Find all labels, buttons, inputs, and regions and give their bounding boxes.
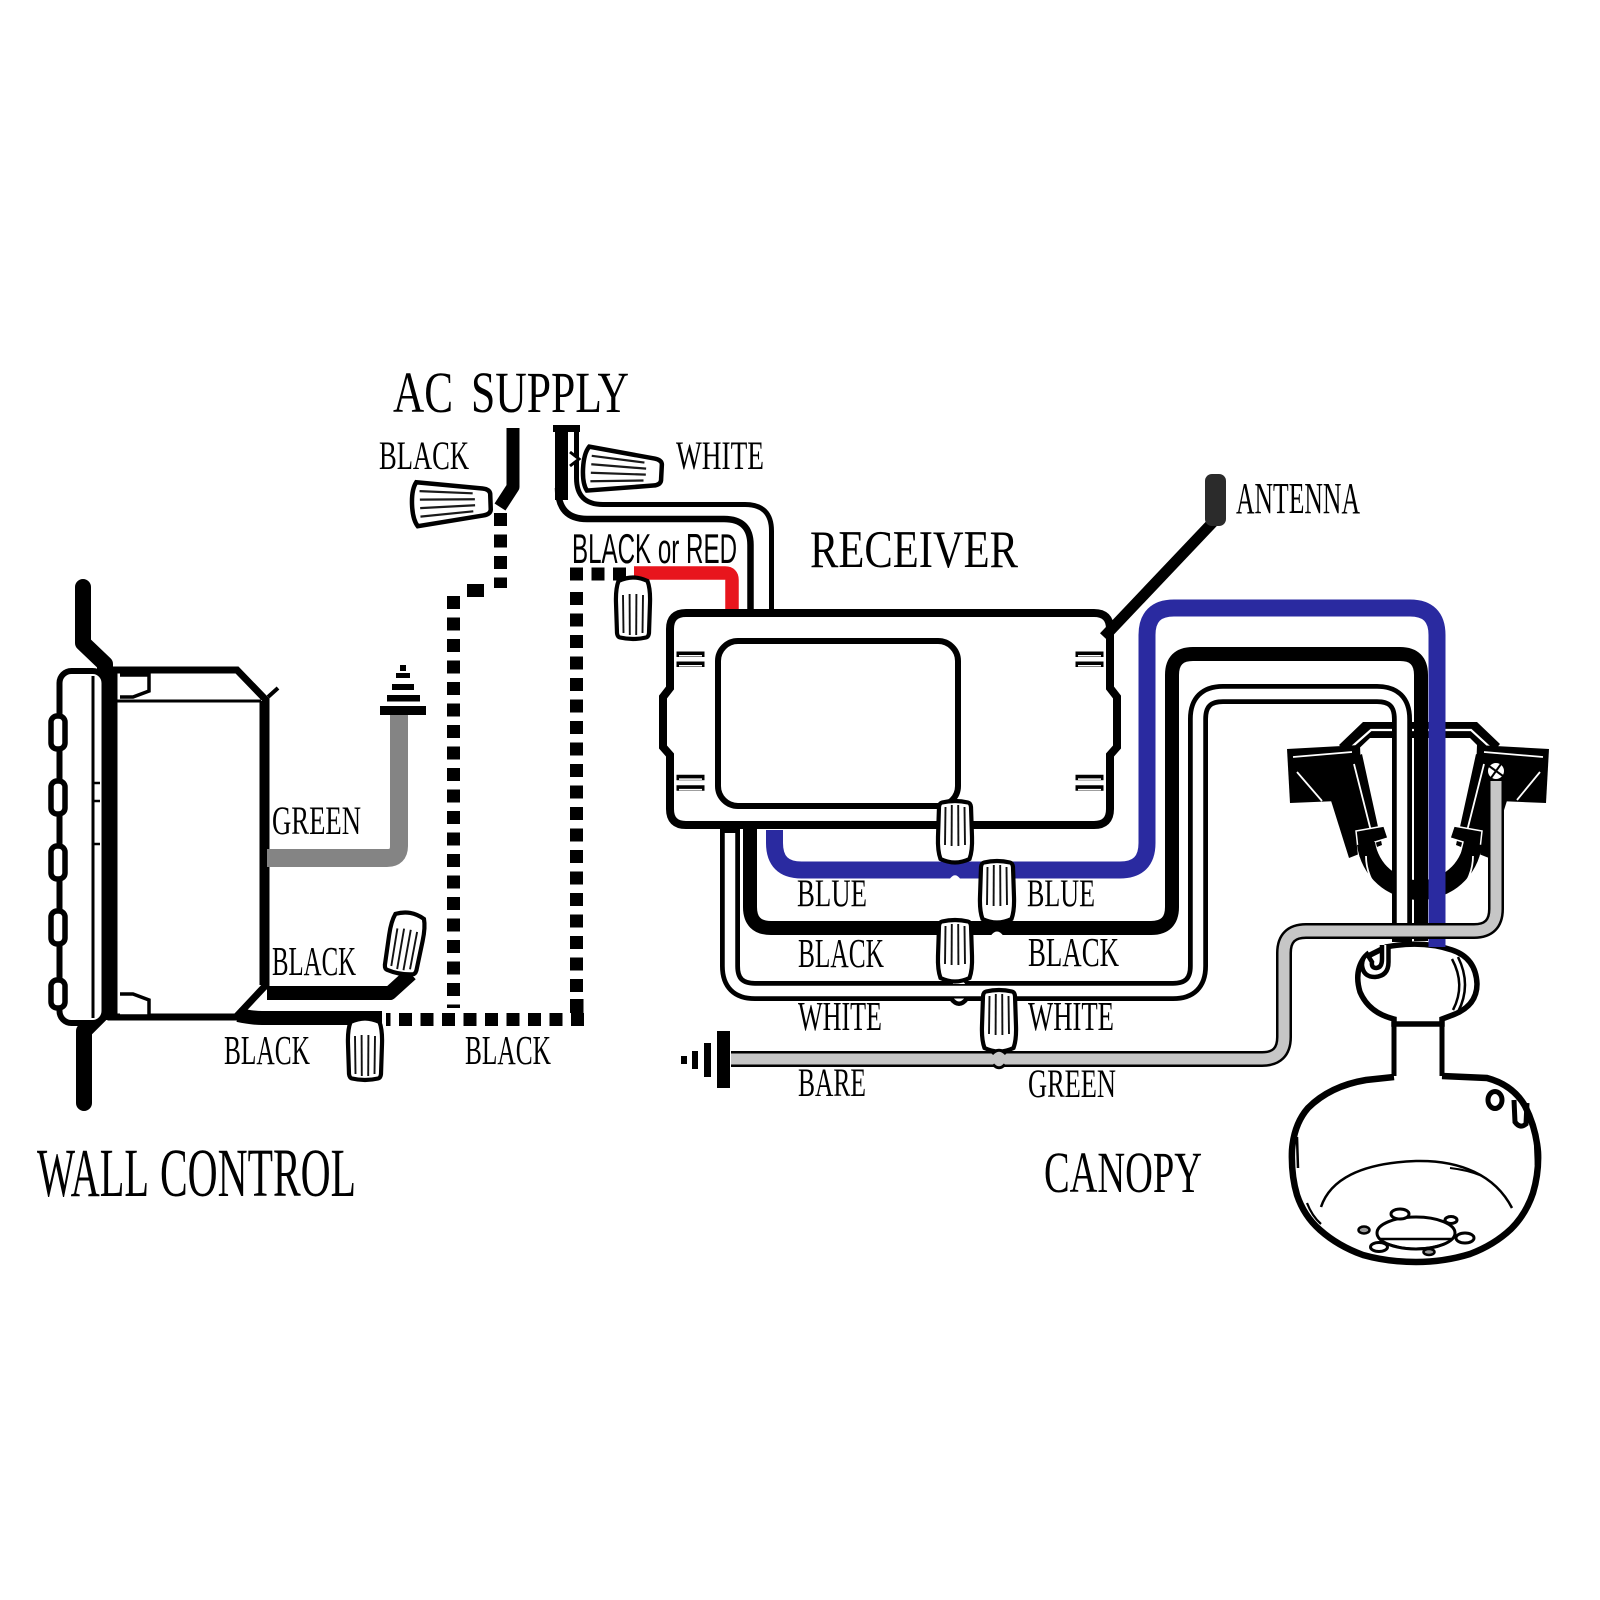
svg-text:ANTENNA: ANTENNA	[1236, 474, 1360, 523]
svg-text:GREEN: GREEN	[1028, 1061, 1116, 1106]
svg-text:GREEN: GREEN	[272, 798, 361, 843]
svg-text:BARE: BARE	[798, 1060, 866, 1105]
svg-text:WHITE: WHITE	[676, 433, 764, 478]
svg-text:BLACK: BLACK	[1028, 929, 1119, 975]
svg-text:BLACK: BLACK	[465, 1027, 551, 1073]
svg-text:WHITE: WHITE	[798, 993, 882, 1039]
svg-text:BLACK: BLACK	[224, 1027, 310, 1073]
svg-text:BLUE: BLUE	[797, 872, 867, 915]
svg-text:BLACK: BLACK	[798, 930, 884, 976]
svg-text:CANOPY: CANOPY	[1044, 1140, 1202, 1205]
svg-text:CONTROL: CONTROL	[160, 1135, 356, 1211]
svg-text:BLUE: BLUE	[1027, 872, 1095, 915]
svg-text:WHITE: WHITE	[1028, 993, 1114, 1039]
svg-text:RECEIVER: RECEIVER	[810, 521, 1019, 579]
svg-text:BLACK: BLACK	[272, 938, 356, 984]
svg-text:AC: AC	[393, 360, 453, 425]
svg-text:SUPPLY: SUPPLY	[471, 360, 629, 425]
svg-text:WALL: WALL	[37, 1135, 149, 1211]
svg-text:BLACK or RED: BLACK or RED	[572, 525, 737, 572]
svg-text:BLACK: BLACK	[379, 433, 469, 478]
